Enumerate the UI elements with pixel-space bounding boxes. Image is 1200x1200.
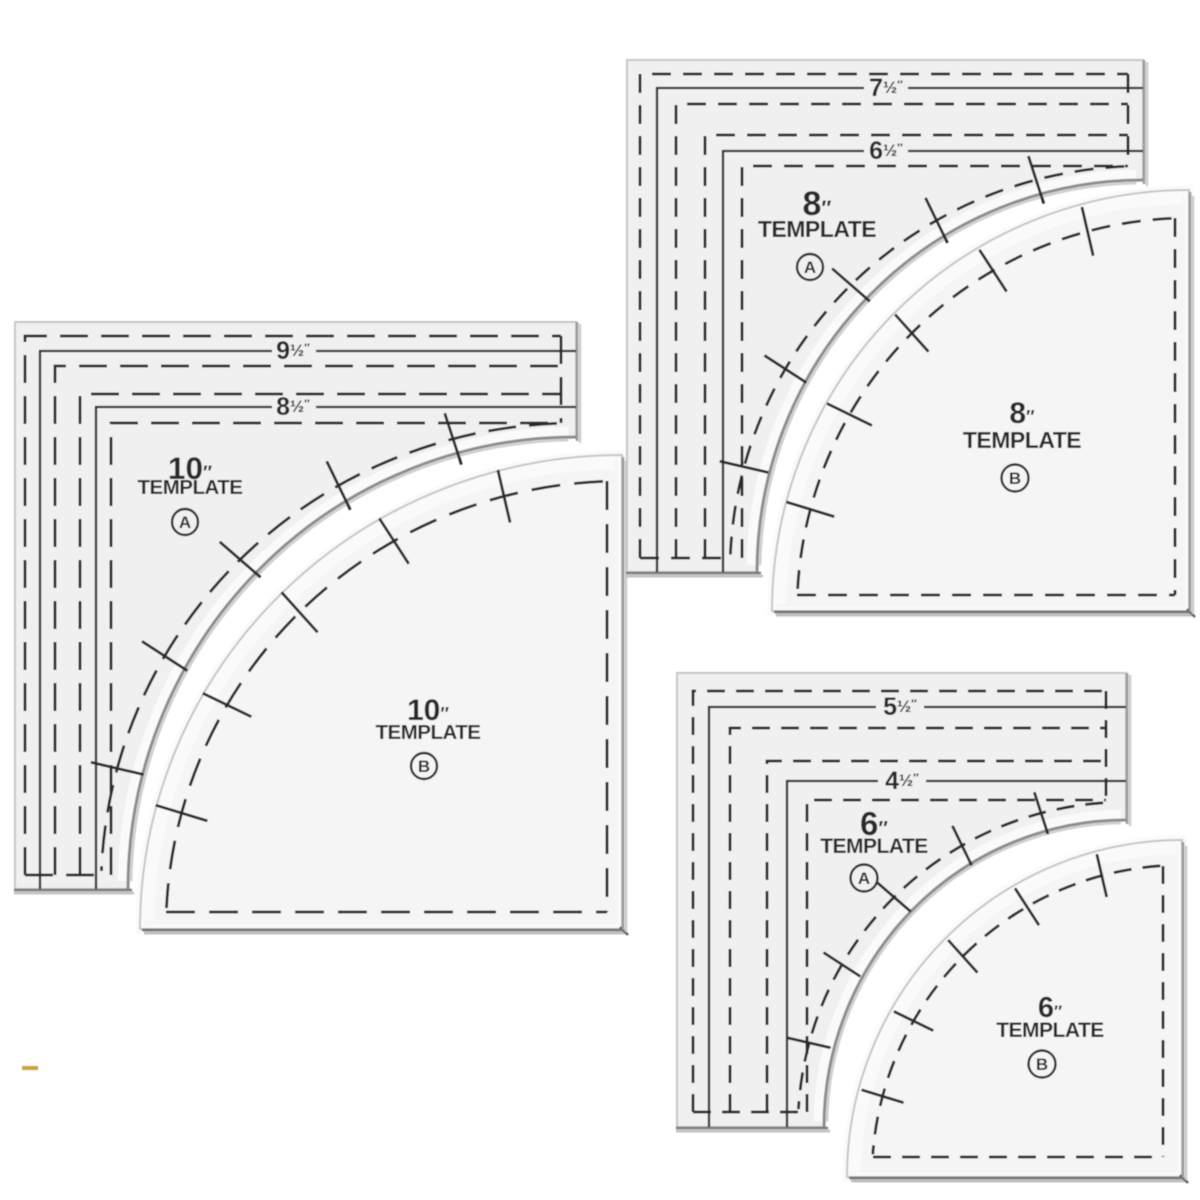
svg-text:TEMPLATE: TEMPLATE bbox=[963, 427, 1081, 453]
svg-text:B: B bbox=[1009, 469, 1021, 488]
svg-text:TEMPLATE: TEMPLATE bbox=[996, 1019, 1104, 1042]
svg-text:B: B bbox=[1036, 1055, 1048, 1074]
svg-text:TEMPLATE: TEMPLATE bbox=[820, 835, 928, 858]
svg-text:TEMPLATE: TEMPLATE bbox=[758, 216, 876, 242]
svg-text:TEMPLATE: TEMPLATE bbox=[376, 721, 481, 744]
svg-text:TEMPLATE: TEMPLATE bbox=[138, 476, 243, 499]
svg-text:A: A bbox=[804, 258, 816, 277]
svg-text:A: A bbox=[858, 869, 870, 888]
svg-text:B: B bbox=[418, 757, 430, 776]
svg-text:A: A bbox=[179, 513, 191, 532]
